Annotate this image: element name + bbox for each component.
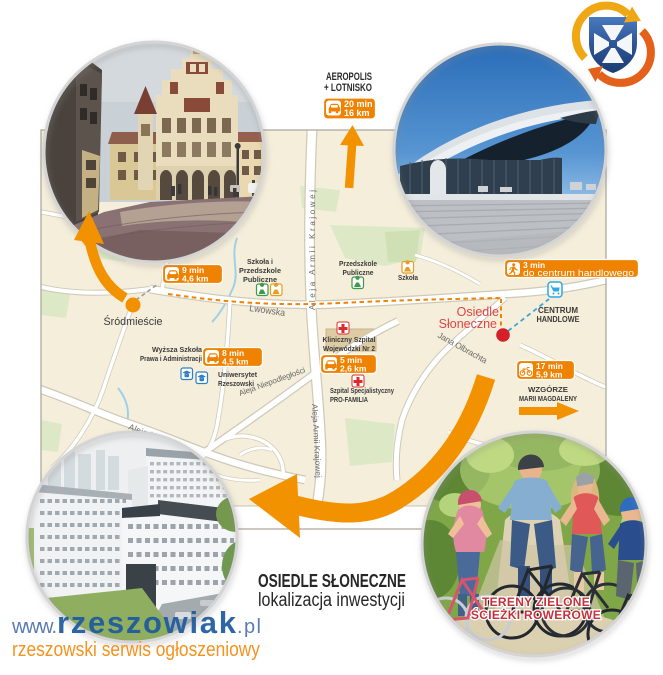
svg-text:16 km: 16 km <box>344 108 370 118</box>
svg-text:WZGÓRZE: WZGÓRZE <box>528 385 568 394</box>
svg-text:TERENY ZIELONE: TERENY ZIELONE <box>482 595 590 609</box>
svg-text:2,6 km: 2,6 km <box>340 364 367 374</box>
svg-text:PRO-FAMILIA: PRO-FAMILIA <box>330 395 368 404</box>
svg-text:www.: www. <box>11 616 57 638</box>
svg-text:Rzeszowski: Rzeszowski <box>218 379 254 388</box>
svg-text:Szkoła: Szkoła <box>398 273 419 282</box>
svg-text:rzeszowski serwis ogłoszeniowy: rzeszowski serwis ogłoszeniowy <box>12 639 260 661</box>
svg-text:Przedszkole: Przedszkole <box>339 259 377 268</box>
svg-text:Słoneczne: Słoneczne <box>439 317 497 331</box>
svg-text:lokalizacja inwestycji: lokalizacja inwestycji <box>258 590 405 611</box>
svg-text:HANDLOWE: HANDLOWE <box>537 315 580 324</box>
svg-text:CENTRUM: CENTRUM <box>538 306 578 315</box>
svg-text:4,5 km: 4,5 km <box>222 357 249 367</box>
svg-text:Publiczne: Publiczne <box>343 268 374 277</box>
svg-text:ŚCIEŻKI ROWEROWE: ŚCIEŻKI ROWEROWE <box>471 607 601 622</box>
svg-text:Publiczne: Publiczne <box>243 275 277 284</box>
svg-text:rzeszowiak: rzeszowiak <box>57 605 237 640</box>
svg-text:Przedszkole: Przedszkole <box>239 266 281 275</box>
svg-text:Kliniczny Szpital: Kliniczny Szpital <box>323 335 376 344</box>
svg-text:MARII MAGDALENY: MARII MAGDALENY <box>519 396 577 403</box>
svg-text:+ LOTNISKO: + LOTNISKO <box>324 82 372 94</box>
svg-text:do centrum handlowego: do centrum handlowego <box>523 268 634 279</box>
svg-text:4,6 km: 4,6 km <box>182 274 209 284</box>
svg-text:Uniwersytet: Uniwersytet <box>218 370 257 379</box>
svg-text:Prawa i Administracji: Prawa i Administracji <box>140 354 202 363</box>
svg-text:Śródmieście: Śródmieście <box>104 315 163 328</box>
svg-text:OSIEDLE SŁONECZNE: OSIEDLE SŁONECZNE <box>258 570 406 591</box>
svg-text:Wyższa Szkoła: Wyższa Szkoła <box>152 345 203 354</box>
svg-text:Wojewódzki Nr 2: Wojewódzki Nr 2 <box>323 344 375 353</box>
svg-text:.pl: .pl <box>237 616 261 638</box>
svg-text:5,9 km: 5,9 km <box>536 370 563 380</box>
svg-text:Szkoła i: Szkoła i <box>247 257 273 266</box>
